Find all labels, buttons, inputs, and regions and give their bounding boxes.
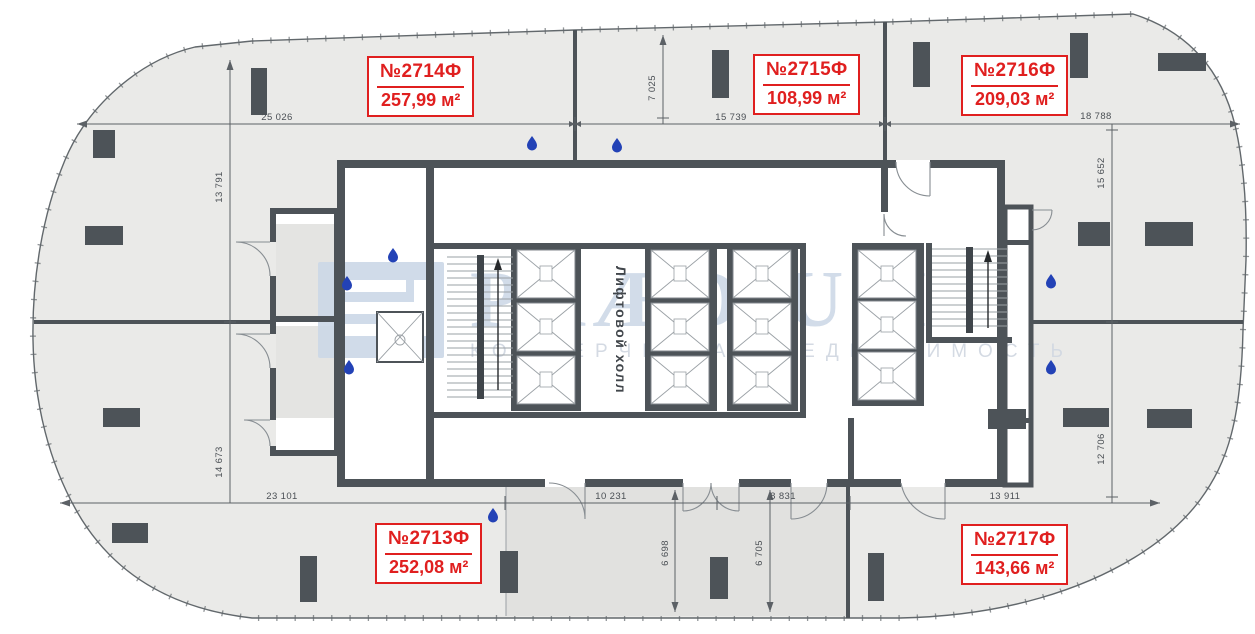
floor-plan-canvas: PRÆDIUM КОММЕРЧЕСКАЯ НЕДВИЖИМОСТЬ — [0, 0, 1255, 634]
elevator-shaft — [858, 250, 916, 298]
elevator-shaft — [733, 356, 791, 404]
dim-label: 13 791 — [214, 171, 225, 202]
elevator-shaft — [517, 250, 575, 298]
unit-number: №2716Ф — [971, 60, 1058, 87]
elevator-shaft — [517, 356, 575, 404]
unit-number: №2714Ф — [377, 61, 464, 88]
elevator-shaft — [517, 303, 575, 351]
unit-label-2713: №2713Ф 252,08 м² — [375, 523, 482, 584]
dim-label: 6 698 — [660, 540, 671, 566]
dim-label: 25 026 — [261, 112, 292, 123]
service-elevator — [377, 312, 423, 362]
unit-label-2716: №2716Ф 209,03 м² — [961, 55, 1068, 116]
dim-label: 18 788 — [1080, 111, 1111, 122]
dim-label: 14 673 — [214, 446, 225, 477]
elevator-shaft — [651, 356, 709, 404]
unit-number: №2713Ф — [385, 528, 472, 555]
elevator-shaft — [858, 352, 916, 400]
unit-label-2715: №2715Ф 108,99 м² — [753, 54, 860, 115]
elevator-shaft — [651, 250, 709, 298]
unit-label-2714: №2714Ф 257,99 м² — [367, 56, 474, 117]
unit-area: 143,66 м² — [971, 556, 1058, 580]
elevator-shaft — [733, 250, 791, 298]
unit-number: №2715Ф — [763, 59, 850, 86]
lift-hall-label: Лифтовой холл — [613, 266, 629, 394]
elevator-shaft — [858, 301, 916, 349]
dim-label: 7 025 — [647, 75, 658, 101]
unit-label-2717: №2717Ф 143,66 м² — [961, 524, 1068, 585]
unit-area: 257,99 м² — [377, 88, 464, 112]
dim-label: 10 231 — [595, 491, 626, 502]
dim-label: 8 831 — [770, 491, 796, 502]
unit-area: 252,08 м² — [385, 555, 472, 579]
dim-label: 13 911 — [990, 491, 1021, 502]
unit-area: 108,99 м² — [763, 86, 850, 110]
unit-number: №2717Ф — [971, 529, 1058, 556]
dim-label: 15 652 — [1096, 157, 1107, 188]
elevator-shaft — [651, 303, 709, 351]
elevator-shaft — [733, 303, 791, 351]
dim-label: 15 739 — [715, 112, 746, 123]
unit-area: 209,03 м² — [971, 87, 1058, 111]
dim-label: 6 705 — [754, 540, 765, 566]
dim-label: 12 706 — [1096, 433, 1107, 464]
dim-label: 23 101 — [266, 491, 297, 502]
